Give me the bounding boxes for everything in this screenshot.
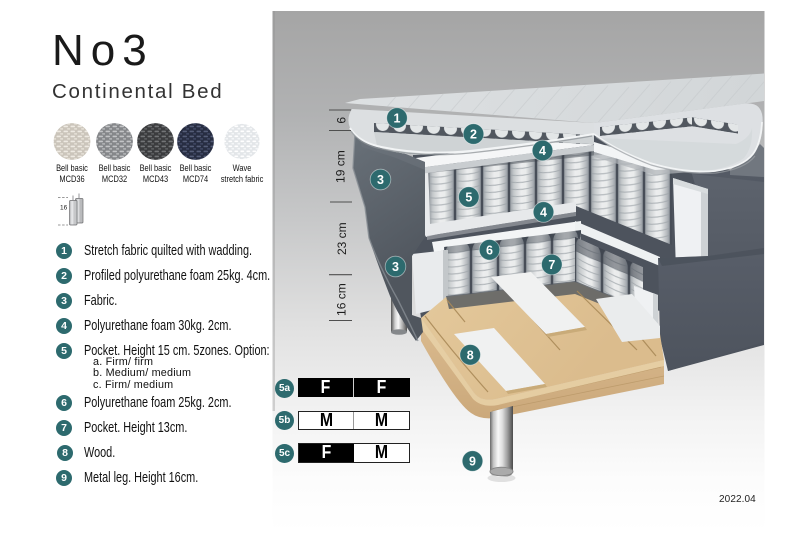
svg-text:19 cm: 19 cm xyxy=(334,150,348,183)
svg-text:4: 4 xyxy=(539,144,546,158)
svg-text:8: 8 xyxy=(467,348,474,362)
svg-text:5: 5 xyxy=(465,191,472,205)
svg-text:6: 6 xyxy=(486,243,493,257)
svg-text:4: 4 xyxy=(540,206,547,220)
svg-text:23 cm: 23 cm xyxy=(335,222,349,255)
svg-text:7: 7 xyxy=(548,258,555,272)
svg-text:2: 2 xyxy=(470,128,477,142)
svg-text:6: 6 xyxy=(335,117,349,124)
svg-text:3: 3 xyxy=(392,260,399,274)
svg-text:1: 1 xyxy=(394,112,401,126)
svg-text:16 cm: 16 cm xyxy=(335,283,349,316)
svg-text:9: 9 xyxy=(469,455,476,469)
svg-text:3: 3 xyxy=(377,173,384,187)
